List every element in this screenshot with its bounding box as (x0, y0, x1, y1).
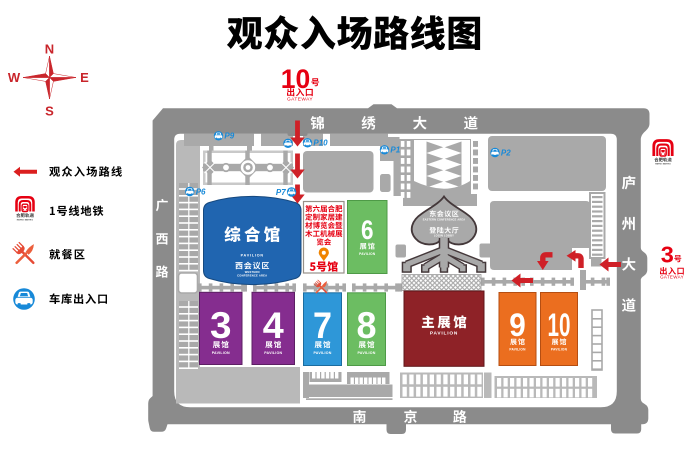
svg-text:E: E (80, 70, 89, 85)
svg-text:P1: P1 (390, 146, 400, 155)
svg-text:P2: P2 (501, 148, 511, 157)
svg-text:S: S (45, 104, 54, 119)
svg-text:N: N (45, 42, 54, 57)
svg-text:GATEWAY: GATEWAY (660, 274, 684, 279)
svg-text:PAVILION: PAVILION (212, 351, 230, 355)
svg-text:PAVILION: PAVILION (241, 254, 264, 258)
svg-text:HEFEI METRO: HEFEI METRO (17, 219, 34, 221)
svg-text:P7: P7 (276, 188, 286, 197)
svg-text:PAVILION: PAVILION (509, 347, 526, 351)
svg-text:4: 4 (263, 304, 284, 346)
svg-text:3: 3 (661, 241, 674, 267)
svg-text:9: 9 (509, 307, 526, 343)
svg-text:LOGIN LOBBY: LOGIN LOBBY (434, 234, 454, 238)
svg-text:CONFERENCE AREA: CONFERENCE AREA (237, 273, 267, 277)
svg-text:7: 7 (313, 304, 332, 346)
svg-text:P6: P6 (196, 187, 206, 196)
svg-text:GATEWAY: GATEWAY (287, 97, 313, 103)
svg-text:3: 3 (210, 304, 232, 346)
svg-text:PAVILION: PAVILION (430, 331, 458, 337)
svg-text:P10: P10 (313, 139, 328, 148)
svg-text:PAVILION: PAVILION (264, 351, 282, 355)
svg-text:PAVILION: PAVILION (359, 252, 376, 256)
svg-text:PAVILION: PAVILION (357, 351, 375, 355)
svg-text:P9: P9 (224, 132, 234, 141)
svg-text:PAVILION: PAVILION (313, 351, 331, 355)
svg-text:10: 10 (548, 307, 571, 343)
svg-text:EASTERN CONFERENCE AREA: EASTERN CONFERENCE AREA (423, 219, 465, 222)
svg-text:W: W (8, 70, 21, 85)
svg-text:HEFEI METRO: HEFEI METRO (655, 163, 671, 165)
svg-text:PAVILION: PAVILION (551, 347, 568, 351)
svg-text:8: 8 (357, 304, 377, 346)
svg-text:6: 6 (361, 215, 374, 245)
